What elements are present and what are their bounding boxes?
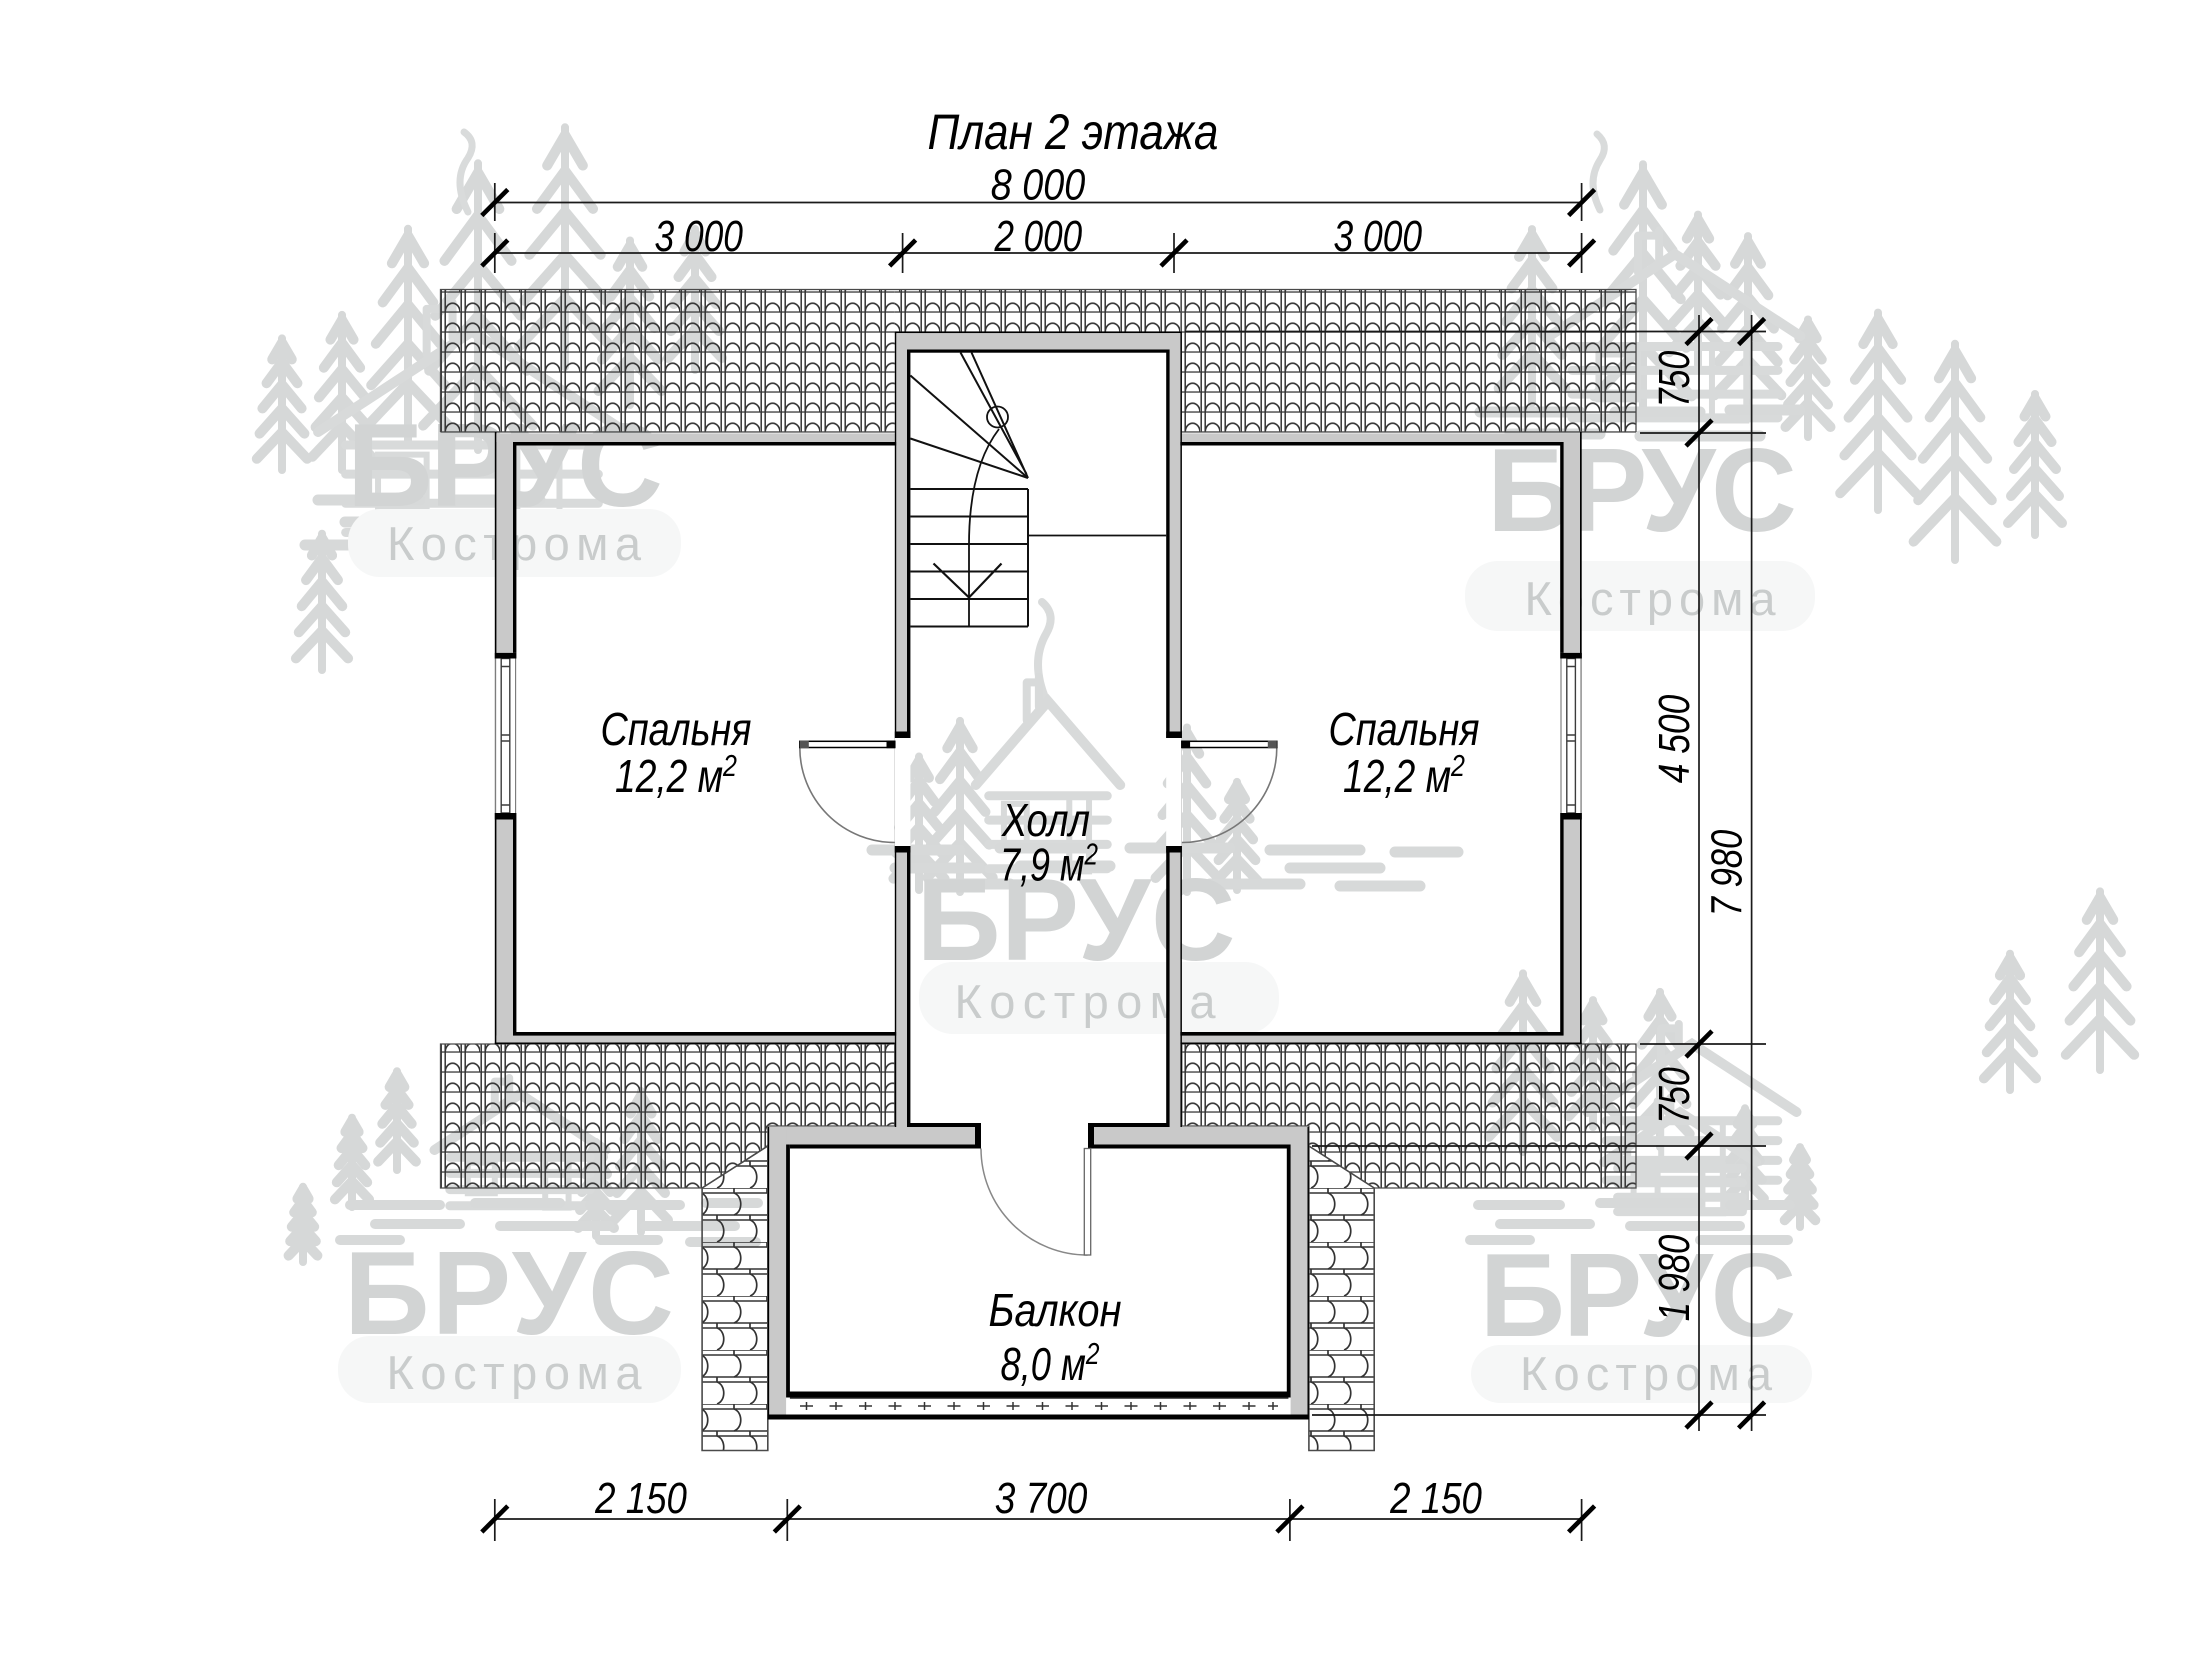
svg-text:7,9 м2: 7,9 м2 — [1000, 837, 1098, 891]
svg-text:3 000: 3 000 — [1334, 212, 1423, 260]
svg-text:Холл: Холл — [1001, 795, 1090, 846]
svg-text:12,2 м2: 12,2 м2 — [615, 748, 737, 801]
svg-text:Спальня: Спальня — [601, 703, 752, 754]
svg-text:750: 750 — [1650, 1067, 1699, 1124]
svg-text:4 500: 4 500 — [1650, 695, 1698, 784]
svg-text:БРУС: БРУС — [1480, 1229, 1797, 1362]
svg-text:7 980: 7 980 — [1703, 830, 1752, 917]
svg-text:1 980: 1 980 — [1650, 1235, 1699, 1322]
svg-text:Кострома: Кострома — [1520, 1347, 1773, 1400]
svg-text:2 150: 2 150 — [1389, 1473, 1482, 1523]
svg-text:Спальня: Спальня — [1329, 703, 1480, 754]
svg-text:3 700: 3 700 — [995, 1473, 1088, 1523]
svg-text:Кострома: Кострома — [387, 1346, 643, 1399]
svg-text:2 000: 2 000 — [994, 212, 1083, 261]
svg-text:8 000: 8 000 — [991, 160, 1086, 209]
svg-text:Балкон: Балкон — [989, 1285, 1122, 1336]
svg-text:12,2 м2: 12,2 м2 — [1343, 748, 1465, 801]
svg-text:2 150: 2 150 — [594, 1473, 687, 1523]
svg-text:750: 750 — [1650, 351, 1699, 408]
svg-text:3 000: 3 000 — [654, 212, 743, 260]
svg-text:8,0 м2: 8,0 м2 — [1000, 1336, 1099, 1390]
svg-text:План 2 этажа: План 2 этажа — [928, 103, 1219, 159]
